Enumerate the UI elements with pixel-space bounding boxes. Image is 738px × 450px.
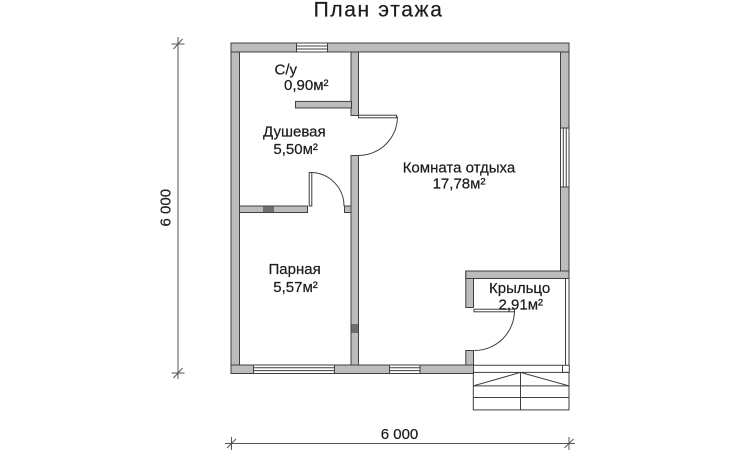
svg-text:Крыльцо: Крыльцо [489, 280, 550, 297]
svg-text:6 000: 6 000 [158, 189, 175, 227]
svg-text:План этажа: План этажа [314, 0, 444, 21]
svg-text:Комната отдыха: Комната отдыха [403, 160, 516, 177]
svg-text:Парная: Парная [269, 261, 321, 278]
svg-text:0,90м²: 0,90м² [284, 77, 329, 94]
svg-text:5,50м²: 5,50м² [273, 141, 318, 158]
svg-text:17,78м²: 17,78м² [433, 176, 486, 193]
svg-text:6 000: 6 000 [381, 426, 419, 443]
svg-text:Душевая: Душевая [263, 124, 326, 141]
svg-text:5,57м²: 5,57м² [273, 279, 318, 296]
svg-text:2,91м²: 2,91м² [499, 297, 544, 314]
